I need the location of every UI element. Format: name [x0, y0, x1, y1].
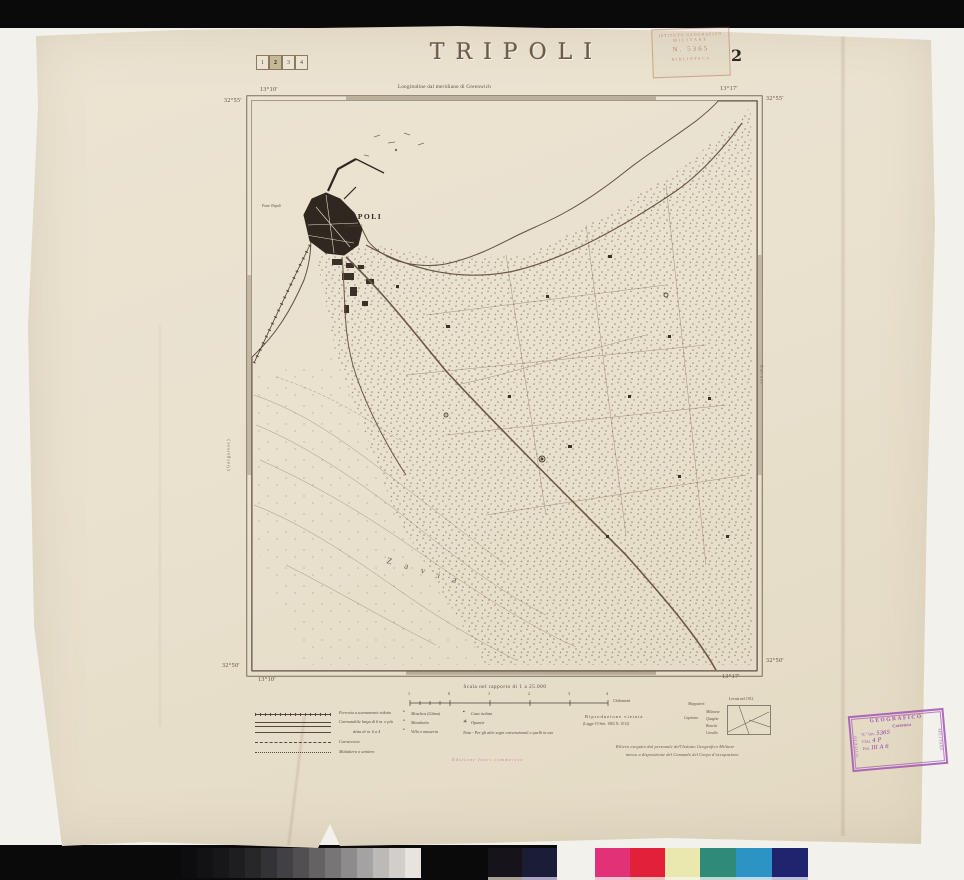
opuntia-symbol: ✳ — [463, 719, 467, 725]
scale-tick-2: 1 — [488, 691, 490, 696]
surveyor-2: Quaglia — [706, 717, 718, 721]
legend-label-opuntia: Opuntie — [471, 720, 485, 725]
library-stamp: ISTITUTO GEOGRAFICO MILITARE N. 5365 BIB… — [651, 27, 731, 79]
legend-label-railway: Ferrovia a scartamento ridotto — [339, 710, 391, 715]
edge-label-left-sheet: (Gargaresc) — [226, 438, 231, 470]
survey-year-note: Levata nel 1912 — [729, 697, 753, 701]
sheet-number: 2 — [731, 46, 742, 65]
gray-patch — [181, 848, 197, 878]
scale-caption: Scala nel rapporto di 1 a 25.000 — [440, 685, 570, 690]
gray-patch — [325, 848, 341, 878]
legend-label-cart-track: Carrareccia — [339, 739, 360, 744]
coord-top-right-lat: 32°55' — [766, 96, 784, 102]
surveyor-3: Bonetti — [706, 724, 717, 728]
city-label: TRIPOLI — [340, 212, 382, 221]
gray-patch — [373, 848, 389, 878]
sheet-index-diagram — [727, 705, 771, 735]
legend-label-house: Casa isolata — [471, 711, 492, 716]
gray-patch — [213, 848, 229, 878]
railway-line — [254, 245, 310, 363]
legend-sample-road-narrow — [255, 732, 331, 733]
coord-bottom-right-lat: 32°50' — [766, 658, 784, 664]
scale-unit: Chilometri — [613, 698, 630, 703]
frame-graduation-bottom — [406, 671, 656, 674]
map-canvas: TRIPOLI (Tarabulos) Forte Tripoli Zavia — [246, 95, 763, 677]
frame-graduation-left — [248, 275, 251, 475]
magenta-patch — [595, 848, 630, 878]
legend-label-road-narrow: detta di m. 6 a 4 — [353, 729, 380, 734]
legend-sample-railway — [255, 713, 331, 716]
gray-patch — [229, 848, 245, 878]
gray-patch — [341, 848, 357, 878]
black-patch — [488, 848, 522, 878]
reproduction-notice: Riproduzione vietata — [585, 714, 643, 719]
legend-label-villa: Villa o masseria — [411, 729, 438, 734]
paper-crease-right — [840, 36, 846, 836]
paper-crease-left — [158, 326, 162, 726]
coord-top-left-lon: 13°10' — [260, 87, 278, 93]
frame-graduation-right — [758, 255, 761, 475]
credit-line-1: Rilievo eseguito dal personale dell'Isti… — [616, 744, 734, 749]
credit-line-2: messo a disposizione del Comando del Cor… — [626, 752, 739, 757]
blue-patch — [736, 848, 772, 878]
marabout-symbol: • — [403, 719, 405, 724]
map-title: TRIPOLI — [430, 40, 590, 65]
coord-bottom-left-lat: 32°50' — [222, 663, 240, 669]
gray-patch — [165, 848, 181, 878]
frame-graduation-top — [346, 97, 656, 100]
yellow-patch — [665, 848, 700, 878]
gray-patch — [357, 848, 373, 878]
indigo-patch — [772, 848, 808, 878]
cartoteca-stamp-inner-border — [851, 711, 945, 769]
library-stamp-number: N. 5365 — [653, 44, 729, 55]
gray-patch — [293, 848, 309, 878]
legend-label-mosque: Moschea (Gâma) — [411, 711, 440, 716]
coord-top-left-lat: 32°55' — [224, 98, 242, 104]
house-symbol: ▪ — [463, 710, 465, 715]
scan-top-bar — [0, 0, 964, 28]
red-patch — [630, 848, 665, 878]
legend-label-marabout: Marabutto — [411, 720, 429, 725]
gray-patch — [389, 848, 405, 878]
scale-tick-4: 3 — [568, 691, 570, 696]
gray-patch — [245, 848, 261, 878]
legend-sample-trail — [255, 752, 331, 753]
surveyors-title: Mappatori: — [688, 702, 706, 706]
cartoteca-stamp: ISTITUTO MILITARE GEOGRAFICO Cartoteca N… — [848, 708, 949, 772]
legend: Ferrovia a scartamento ridotto Carrozzab… — [255, 710, 575, 766]
gray-patch — [277, 848, 293, 878]
city-alt-label: (Tarabulos) — [344, 223, 363, 228]
villa-symbol: • — [403, 728, 405, 733]
index-cell-1: 1 — [256, 55, 269, 70]
scale-tick-0: 1 — [408, 691, 410, 696]
scale-tick-3: 2 — [528, 691, 530, 696]
gray-patch — [309, 848, 325, 878]
coord-bottom-left-lon: 13°10' — [258, 677, 276, 683]
legend-sample-road-wide — [255, 722, 331, 727]
gray-patch — [405, 848, 421, 878]
navy-patch — [522, 848, 557, 878]
reef-marks — [364, 133, 424, 156]
scale-tick-1: 0 — [448, 691, 450, 696]
index-cell-2-active: 2 — [269, 55, 282, 70]
teal-patch — [700, 848, 736, 878]
scale-tick-5: 4 — [606, 691, 608, 696]
legend-label-road-wide: Carrozzabile larga di 6 m. o più — [339, 719, 393, 724]
coord-top-right-lon: 13°17' — [720, 86, 738, 92]
gray-patch — [197, 848, 213, 878]
scale-bar — [408, 696, 623, 706]
surveyor-4: Cavallo — [706, 731, 718, 735]
harbor-mole — [328, 159, 384, 199]
law-reference: (Legge 19 Sett. 1882 N. 1012) — [583, 722, 629, 726]
gray-patch — [261, 848, 277, 878]
legend-label-trail: Mulattiera o sentiero — [339, 749, 374, 754]
mosque-symbol: • — [403, 710, 405, 715]
scanned-map-page: { "colors": { "paper": "#eae2cf", "ink":… — [0, 0, 964, 880]
fort-label: Forte Tripoli — [261, 204, 281, 208]
index-cell-4: 4 — [295, 55, 308, 70]
edition-note: Edizione fuori commercio — [452, 757, 524, 762]
surveyor-rank: Capitano — [684, 716, 698, 720]
surveyor-1: Milanese — [706, 710, 720, 714]
legend-note: Nota - Per gli altri segni convenzionali… — [463, 730, 573, 735]
legend-sample-cart-track — [255, 742, 331, 743]
meridian-note: Longitudine dal meridiano di Greenwich — [398, 85, 491, 90]
library-stamp-line4: BIBLIOTECA — [653, 55, 729, 63]
sheet-index-strip: 1 2 3 4 — [256, 55, 308, 70]
index-cell-3: 3 — [282, 55, 295, 70]
